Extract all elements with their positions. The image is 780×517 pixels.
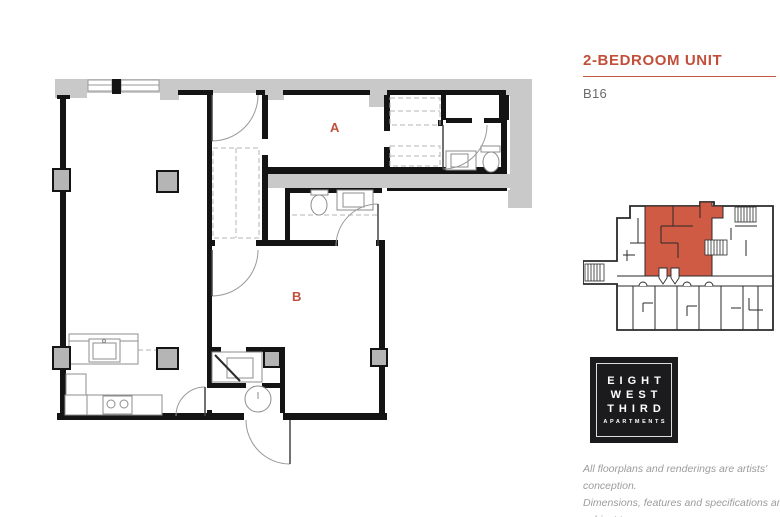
logo-subtitle: APARTMENTS <box>590 419 678 425</box>
room-b-label: B <box>292 289 302 304</box>
floorplan-drawing: A B <box>0 0 560 517</box>
logo-line-1: EIGHT <box>590 374 678 388</box>
room-a-label: A <box>330 120 340 135</box>
page-title: 2-BEDROOM UNIT <box>583 52 776 77</box>
disclaimer-line-1: All floorplans and renderings are artist… <box>583 461 780 495</box>
floorplan-page: A B 2-BEDROOM UNIT B16 <box>0 0 780 517</box>
disclaimer-line-2: Dimensions, features and specifications … <box>583 495 780 517</box>
unit-number: B16 <box>583 86 776 101</box>
keyplan-highlighted-unit <box>645 202 723 276</box>
logo-line-2: WEST <box>590 388 678 402</box>
logo-line-3: THIRD <box>590 402 678 416</box>
disclaimer: All floorplans and renderings are artist… <box>583 461 780 517</box>
keyplan-drawing <box>583 198 779 338</box>
brand-logo: EIGHT WEST THIRD APARTMENTS <box>590 357 678 443</box>
title-block: 2-BEDROOM UNIT B16 <box>583 52 776 101</box>
door-swings <box>176 95 487 464</box>
interior-walls <box>57 90 509 420</box>
